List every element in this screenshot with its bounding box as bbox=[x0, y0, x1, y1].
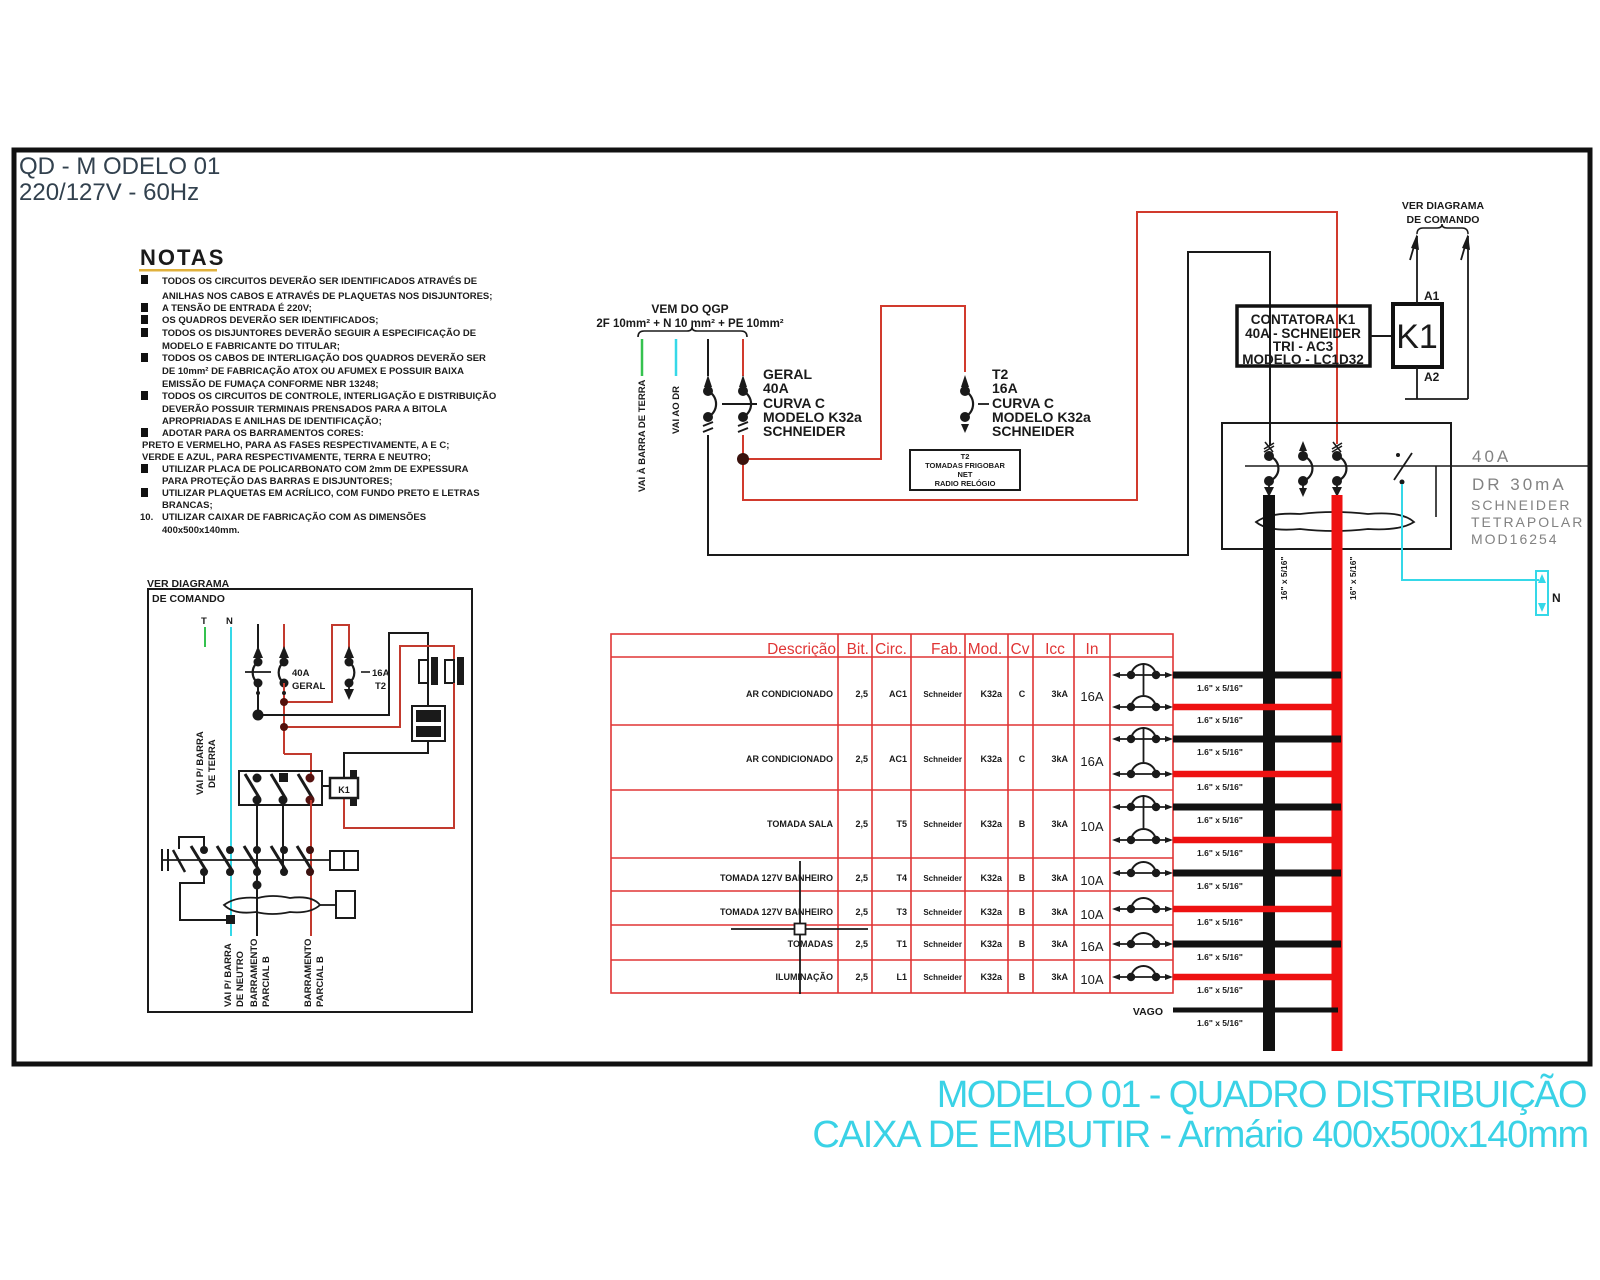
svg-text:1.6" x 5/16": 1.6" x 5/16" bbox=[1197, 917, 1243, 927]
svg-text:K1: K1 bbox=[1396, 318, 1438, 356]
svg-text:MODELO E FABRICANTE DO TITULAR: MODELO E FABRICANTE DO TITULAR; bbox=[162, 341, 340, 352]
svg-text:10A: 10A bbox=[1080, 972, 1103, 987]
svg-text:2,5: 2,5 bbox=[855, 689, 868, 699]
svg-text:16A: 16A bbox=[1080, 754, 1103, 769]
svg-text:TOMADAS: TOMADAS bbox=[788, 939, 833, 949]
svg-text:PRETO E VERMELHO, PARA AS FASE: PRETO E VERMELHO, PARA AS FASES RESPECTI… bbox=[142, 440, 449, 451]
svg-text:Schneider: Schneider bbox=[923, 874, 962, 883]
svg-text:MODELO 01 - QUADRO DISTRIBUIÇÃ: MODELO 01 - QUADRO DISTRIBUIÇÃO bbox=[937, 1073, 1586, 1116]
svg-text:Schneider: Schneider bbox=[923, 820, 962, 829]
svg-text:ILUMINAÇÃO: ILUMINAÇÃO bbox=[776, 972, 834, 982]
svg-text:ADOTAR PARA OS BARRAMENTOS COR: ADOTAR PARA OS BARRAMENTOS CORES: bbox=[162, 428, 364, 439]
svg-text:40A: 40A bbox=[292, 668, 310, 679]
svg-text:1.6" x 5/16": 1.6" x 5/16" bbox=[1197, 715, 1243, 725]
svg-text:TOMADAS FRIGOBAR: TOMADAS FRIGOBAR bbox=[925, 461, 1005, 470]
svg-text:Schneider: Schneider bbox=[923, 973, 962, 982]
svg-text:TODOS OS DISJUNTORES DEVERÃO S: TODOS OS DISJUNTORES DEVERÃO SEGUIR A ES… bbox=[162, 328, 476, 339]
svg-text:B: B bbox=[1019, 819, 1026, 829]
svg-text:Schneider: Schneider bbox=[923, 755, 962, 764]
svg-text:2,5: 2,5 bbox=[855, 972, 868, 982]
svg-text:T3: T3 bbox=[896, 907, 907, 917]
svg-text:40A: 40A bbox=[763, 380, 789, 396]
svg-text:16" x 5/16": 16" x 5/16" bbox=[1279, 556, 1289, 600]
svg-text:CONTATORA K1: CONTATORA K1 bbox=[1251, 312, 1356, 327]
svg-text:40A: 40A bbox=[1472, 447, 1511, 466]
svg-text:10A: 10A bbox=[1080, 873, 1103, 888]
svg-text:SCHNEIDER: SCHNEIDER bbox=[992, 423, 1074, 439]
svg-text:RADIO RELÓGIO: RADIO RELÓGIO bbox=[935, 479, 996, 488]
svg-text:2,5: 2,5 bbox=[855, 939, 868, 949]
svg-text:1.6" x 5/16": 1.6" x 5/16" bbox=[1197, 747, 1243, 757]
svg-text:NOTAS: NOTAS bbox=[140, 245, 225, 270]
svg-text:A TENSÃO DE ENTRADA É 220V;: A TENSÃO DE ENTRADA É 220V; bbox=[162, 303, 312, 314]
svg-text:Bit.: Bit. bbox=[847, 641, 869, 658]
svg-text:TODOS OS CIRCUITOS DE CONTROLE: TODOS OS CIRCUITOS DE CONTROLE, INTERLIG… bbox=[162, 391, 496, 402]
svg-text:VAI AO DR: VAI AO DR bbox=[671, 386, 682, 434]
svg-text:Schneider: Schneider bbox=[923, 940, 962, 949]
svg-text:DE COMANDO: DE COMANDO bbox=[152, 593, 225, 605]
svg-text:MODELO - LC1D32: MODELO - LC1D32 bbox=[1242, 352, 1364, 367]
svg-text:10A: 10A bbox=[1080, 819, 1103, 834]
svg-text:1.6" x 5/16": 1.6" x 5/16" bbox=[1197, 815, 1243, 825]
svg-text:Circ.: Circ. bbox=[875, 641, 907, 658]
svg-text:1.6" x 5/16": 1.6" x 5/16" bbox=[1197, 1018, 1243, 1028]
svg-text:C: C bbox=[1019, 754, 1026, 764]
svg-text:TETRAPOLAR: TETRAPOLAR bbox=[1471, 514, 1584, 530]
svg-text:B: B bbox=[1019, 873, 1026, 883]
svg-text:UTILIZAR PLACA DE POLICARBONAT: UTILIZAR PLACA DE POLICARBONATO COM 2mm … bbox=[162, 464, 469, 475]
svg-text:3kA: 3kA bbox=[1051, 873, 1068, 883]
svg-text:BARRAMENTO: BARRAMENTO bbox=[303, 939, 314, 1007]
svg-text:T2: T2 bbox=[961, 452, 970, 461]
svg-text:K32a: K32a bbox=[980, 972, 1003, 982]
svg-text:L1: L1 bbox=[896, 972, 907, 982]
svg-text:VER DIAGRAMA: VER DIAGRAMA bbox=[147, 578, 230, 590]
svg-text:PARCIAL B: PARCIAL B bbox=[315, 956, 326, 1007]
svg-text:QD - M ODELO 01: QD - M ODELO 01 bbox=[19, 153, 220, 180]
svg-text:AR CONDICIONADO: AR CONDICIONADO bbox=[746, 689, 833, 699]
svg-text:DE TERRA: DE TERRA bbox=[207, 739, 218, 788]
svg-text:APROPRIADAS E ANILHAS DE IDENT: APROPRIADAS E ANILHAS DE IDENTIFICAÇÃO; bbox=[162, 416, 382, 427]
svg-text:BRANCAS;: BRANCAS; bbox=[162, 500, 213, 511]
svg-text:TODOS OS CABOS DE INTERLIGAÇÃO: TODOS OS CABOS DE INTERLIGAÇÃO DOS QUADR… bbox=[162, 353, 486, 364]
svg-text:CAIXA DE EMBUTIR - Armário 40: CAIXA DE EMBUTIR - Armário 400x500x140mm bbox=[812, 1114, 1588, 1156]
svg-text:K1: K1 bbox=[338, 785, 350, 795]
svg-text:Cv: Cv bbox=[1011, 641, 1030, 658]
svg-text:Fab.: Fab. bbox=[931, 641, 962, 658]
svg-text:SCHNEIDER: SCHNEIDER bbox=[1471, 497, 1571, 513]
svg-text:A1: A1 bbox=[1424, 289, 1440, 303]
svg-text:2,5: 2,5 bbox=[855, 907, 868, 917]
svg-text:Descrição: Descrição bbox=[767, 641, 836, 658]
svg-text:220/127V - 60Hz: 220/127V - 60Hz bbox=[19, 179, 199, 206]
svg-text:N: N bbox=[1552, 591, 1561, 605]
svg-text:Icc: Icc bbox=[1045, 641, 1065, 658]
svg-text:3kA: 3kA bbox=[1051, 819, 1068, 829]
svg-text:PARCIAL B: PARCIAL B bbox=[261, 956, 272, 1007]
svg-text:SCHNEIDER: SCHNEIDER bbox=[763, 423, 845, 439]
svg-text:K32a: K32a bbox=[980, 939, 1003, 949]
svg-text:VAI À BARRA DE TERRA: VAI À BARRA DE TERRA bbox=[637, 379, 648, 492]
svg-text:3kA: 3kA bbox=[1051, 754, 1068, 764]
svg-text:B: B bbox=[1019, 972, 1026, 982]
svg-text:3kA: 3kA bbox=[1051, 972, 1068, 982]
svg-text:AR CONDICIONADO: AR CONDICIONADO bbox=[746, 754, 833, 764]
svg-text:DE COMANDO: DE COMANDO bbox=[1407, 214, 1480, 226]
svg-text:Mod.: Mod. bbox=[968, 641, 1002, 658]
svg-text:1.6" x 5/16": 1.6" x 5/16" bbox=[1197, 985, 1243, 995]
svg-text:K32a: K32a bbox=[980, 873, 1003, 883]
svg-text:2,5: 2,5 bbox=[855, 819, 868, 829]
svg-text:DR 30mA: DR 30mA bbox=[1472, 475, 1567, 494]
svg-text:GERAL: GERAL bbox=[292, 681, 325, 692]
svg-text:T: T bbox=[201, 616, 207, 627]
svg-text:16A: 16A bbox=[372, 668, 390, 679]
svg-text:1.6" x 5/16": 1.6" x 5/16" bbox=[1197, 782, 1243, 792]
svg-text:Schneider: Schneider bbox=[923, 690, 962, 699]
svg-text:2,5: 2,5 bbox=[855, 754, 868, 764]
svg-text:1.6" x 5/16": 1.6" x 5/16" bbox=[1197, 952, 1243, 962]
svg-text:Schneider: Schneider bbox=[923, 908, 962, 917]
svg-text:T1: T1 bbox=[896, 939, 907, 949]
svg-text:16A: 16A bbox=[1080, 689, 1103, 704]
svg-text:16" x 5/16": 16" x 5/16" bbox=[1348, 556, 1358, 600]
svg-text:400x500x140mm.: 400x500x140mm. bbox=[162, 525, 240, 536]
svg-text:DEVERÃO POSSUIR TERMINAIS PREN: DEVERÃO POSSUIR TERMINAIS PRENSADOS PARA… bbox=[162, 404, 447, 415]
svg-text:16A: 16A bbox=[992, 380, 1018, 396]
svg-text:MOD16254: MOD16254 bbox=[1471, 531, 1559, 547]
svg-text:ANILHAS NOS CABOS E ATRAVÉS DE: ANILHAS NOS CABOS E ATRAVÉS DE PLAQUETAS… bbox=[162, 291, 492, 302]
svg-text:K32a: K32a bbox=[980, 754, 1003, 764]
svg-text:TOMADA 127V BANHEIRO: TOMADA 127V BANHEIRO bbox=[720, 873, 833, 883]
svg-text:K32a: K32a bbox=[980, 689, 1003, 699]
svg-text:1.6" x 5/16": 1.6" x 5/16" bbox=[1197, 848, 1243, 858]
svg-text:UTILIZAR PLAQUETAS EM ACRÍLICO: UTILIZAR PLAQUETAS EM ACRÍLICO, COM FUND… bbox=[162, 488, 480, 499]
svg-text:16A: 16A bbox=[1080, 939, 1103, 954]
svg-text:3kA: 3kA bbox=[1051, 907, 1068, 917]
svg-text:10A: 10A bbox=[1080, 907, 1103, 922]
svg-text:B: B bbox=[1019, 907, 1026, 917]
svg-text:1.6" x 5/16": 1.6" x 5/16" bbox=[1197, 683, 1243, 693]
svg-text:1.6" x 5/16": 1.6" x 5/16" bbox=[1197, 881, 1243, 891]
svg-text:VER DIAGRAMA: VER DIAGRAMA bbox=[1402, 200, 1485, 212]
svg-text:OS QUADROS DEVERÃO SER IDENTIF: OS QUADROS DEVERÃO SER IDENTIFICADOS; bbox=[162, 315, 378, 326]
svg-text:VAI P/ BARRA: VAI P/ BARRA bbox=[195, 731, 206, 795]
svg-text:10.: 10. bbox=[140, 512, 153, 523]
svg-text:VERDE E AZUL, PARA RESPECTIVAM: VERDE E AZUL, PARA RESPECTIVAMENTE, TERR… bbox=[142, 452, 431, 463]
svg-text:DE NEUTRO: DE NEUTRO bbox=[235, 951, 246, 1007]
svg-text:C: C bbox=[1019, 689, 1026, 699]
svg-text:TOMADA SALA: TOMADA SALA bbox=[767, 819, 833, 829]
svg-text:NET: NET bbox=[958, 470, 973, 479]
svg-text:T4: T4 bbox=[896, 873, 907, 883]
svg-text:T2: T2 bbox=[375, 681, 386, 692]
svg-text:A2: A2 bbox=[1424, 370, 1440, 384]
svg-text:TODOS OS CIRCUITOS DEVERÃO SER: TODOS OS CIRCUITOS DEVERÃO SER IDENTIFIC… bbox=[162, 276, 477, 287]
svg-text:K32a: K32a bbox=[980, 907, 1003, 917]
svg-text:2,5: 2,5 bbox=[855, 873, 868, 883]
svg-text:N: N bbox=[226, 616, 233, 627]
svg-text:AC1: AC1 bbox=[889, 689, 907, 699]
svg-text:T5: T5 bbox=[896, 819, 907, 829]
svg-text:TOMADA 127V BANHEIRO: TOMADA 127V BANHEIRO bbox=[720, 907, 833, 917]
svg-text:VEM DO QGP: VEM DO QGP bbox=[651, 302, 728, 316]
svg-text:VAI P/ BARRA: VAI P/ BARRA bbox=[223, 943, 234, 1007]
svg-text:In: In bbox=[1086, 641, 1099, 658]
svg-text:3kA: 3kA bbox=[1051, 689, 1068, 699]
svg-text:B: B bbox=[1019, 939, 1026, 949]
svg-text:UTILIZAR CAIXAR DE FABRICAÇÃO: UTILIZAR CAIXAR DE FABRICAÇÃO COM AS DIM… bbox=[162, 512, 426, 523]
svg-text:DE 10mm² DE FABRICAÇÃO ATOX OU: DE 10mm² DE FABRICAÇÃO ATOX OU AFUMEX E … bbox=[162, 366, 464, 377]
svg-text:3kA: 3kA bbox=[1051, 939, 1068, 949]
svg-text:2F 10mm² + N 10 mm² + PE 10: 2F 10mm² + N 10 mm² + PE 10mm² bbox=[596, 318, 783, 330]
svg-text:EMISSÃO DE FUMAÇA CONFORME NBR: EMISSÃO DE FUMAÇA CONFORME NBR 13248; bbox=[162, 379, 379, 390]
svg-text:VAGO: VAGO bbox=[1133, 1006, 1163, 1018]
svg-text:BARRAMENTO: BARRAMENTO bbox=[249, 939, 260, 1007]
svg-text:AC1: AC1 bbox=[889, 754, 907, 764]
svg-text:K32a: K32a bbox=[980, 819, 1003, 829]
svg-text:PARA PROTEÇÃO DAS BARRAS E DIS: PARA PROTEÇÃO DAS BARRAS E DISJUNTORES; bbox=[162, 476, 393, 487]
